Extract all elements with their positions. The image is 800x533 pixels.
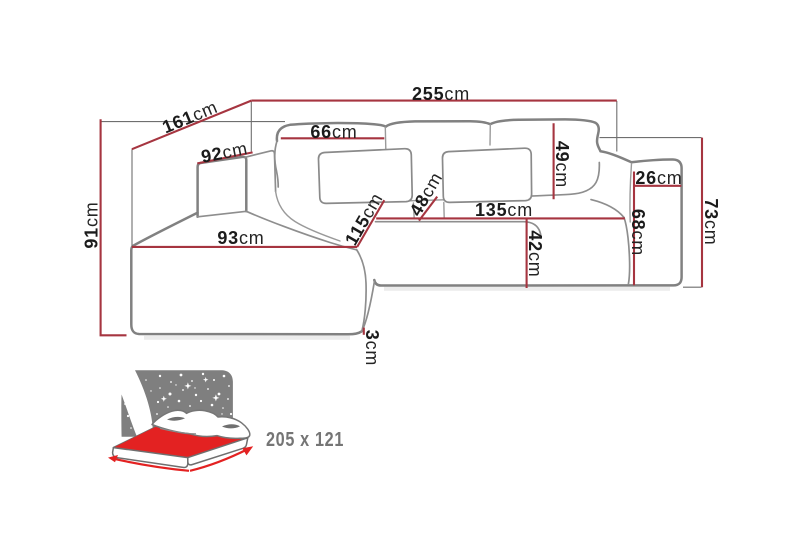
svg-text:73cm: 73cm	[701, 198, 721, 245]
svg-text:93cm: 93cm	[217, 228, 264, 248]
svg-text:42cm: 42cm	[525, 230, 545, 277]
svg-text:66cm: 66cm	[310, 122, 357, 142]
svg-text:91cm: 91cm	[82, 201, 102, 248]
svg-text:68cm: 68cm	[628, 209, 648, 256]
svg-text:49cm: 49cm	[552, 141, 572, 188]
svg-text:135cm: 135cm	[475, 200, 533, 220]
svg-text:26cm: 26cm	[635, 168, 682, 188]
svg-text:3cm: 3cm	[362, 330, 382, 366]
svg-text:205 x 121: 205 x 121	[266, 429, 344, 451]
svg-text:255cm: 255cm	[412, 84, 470, 104]
